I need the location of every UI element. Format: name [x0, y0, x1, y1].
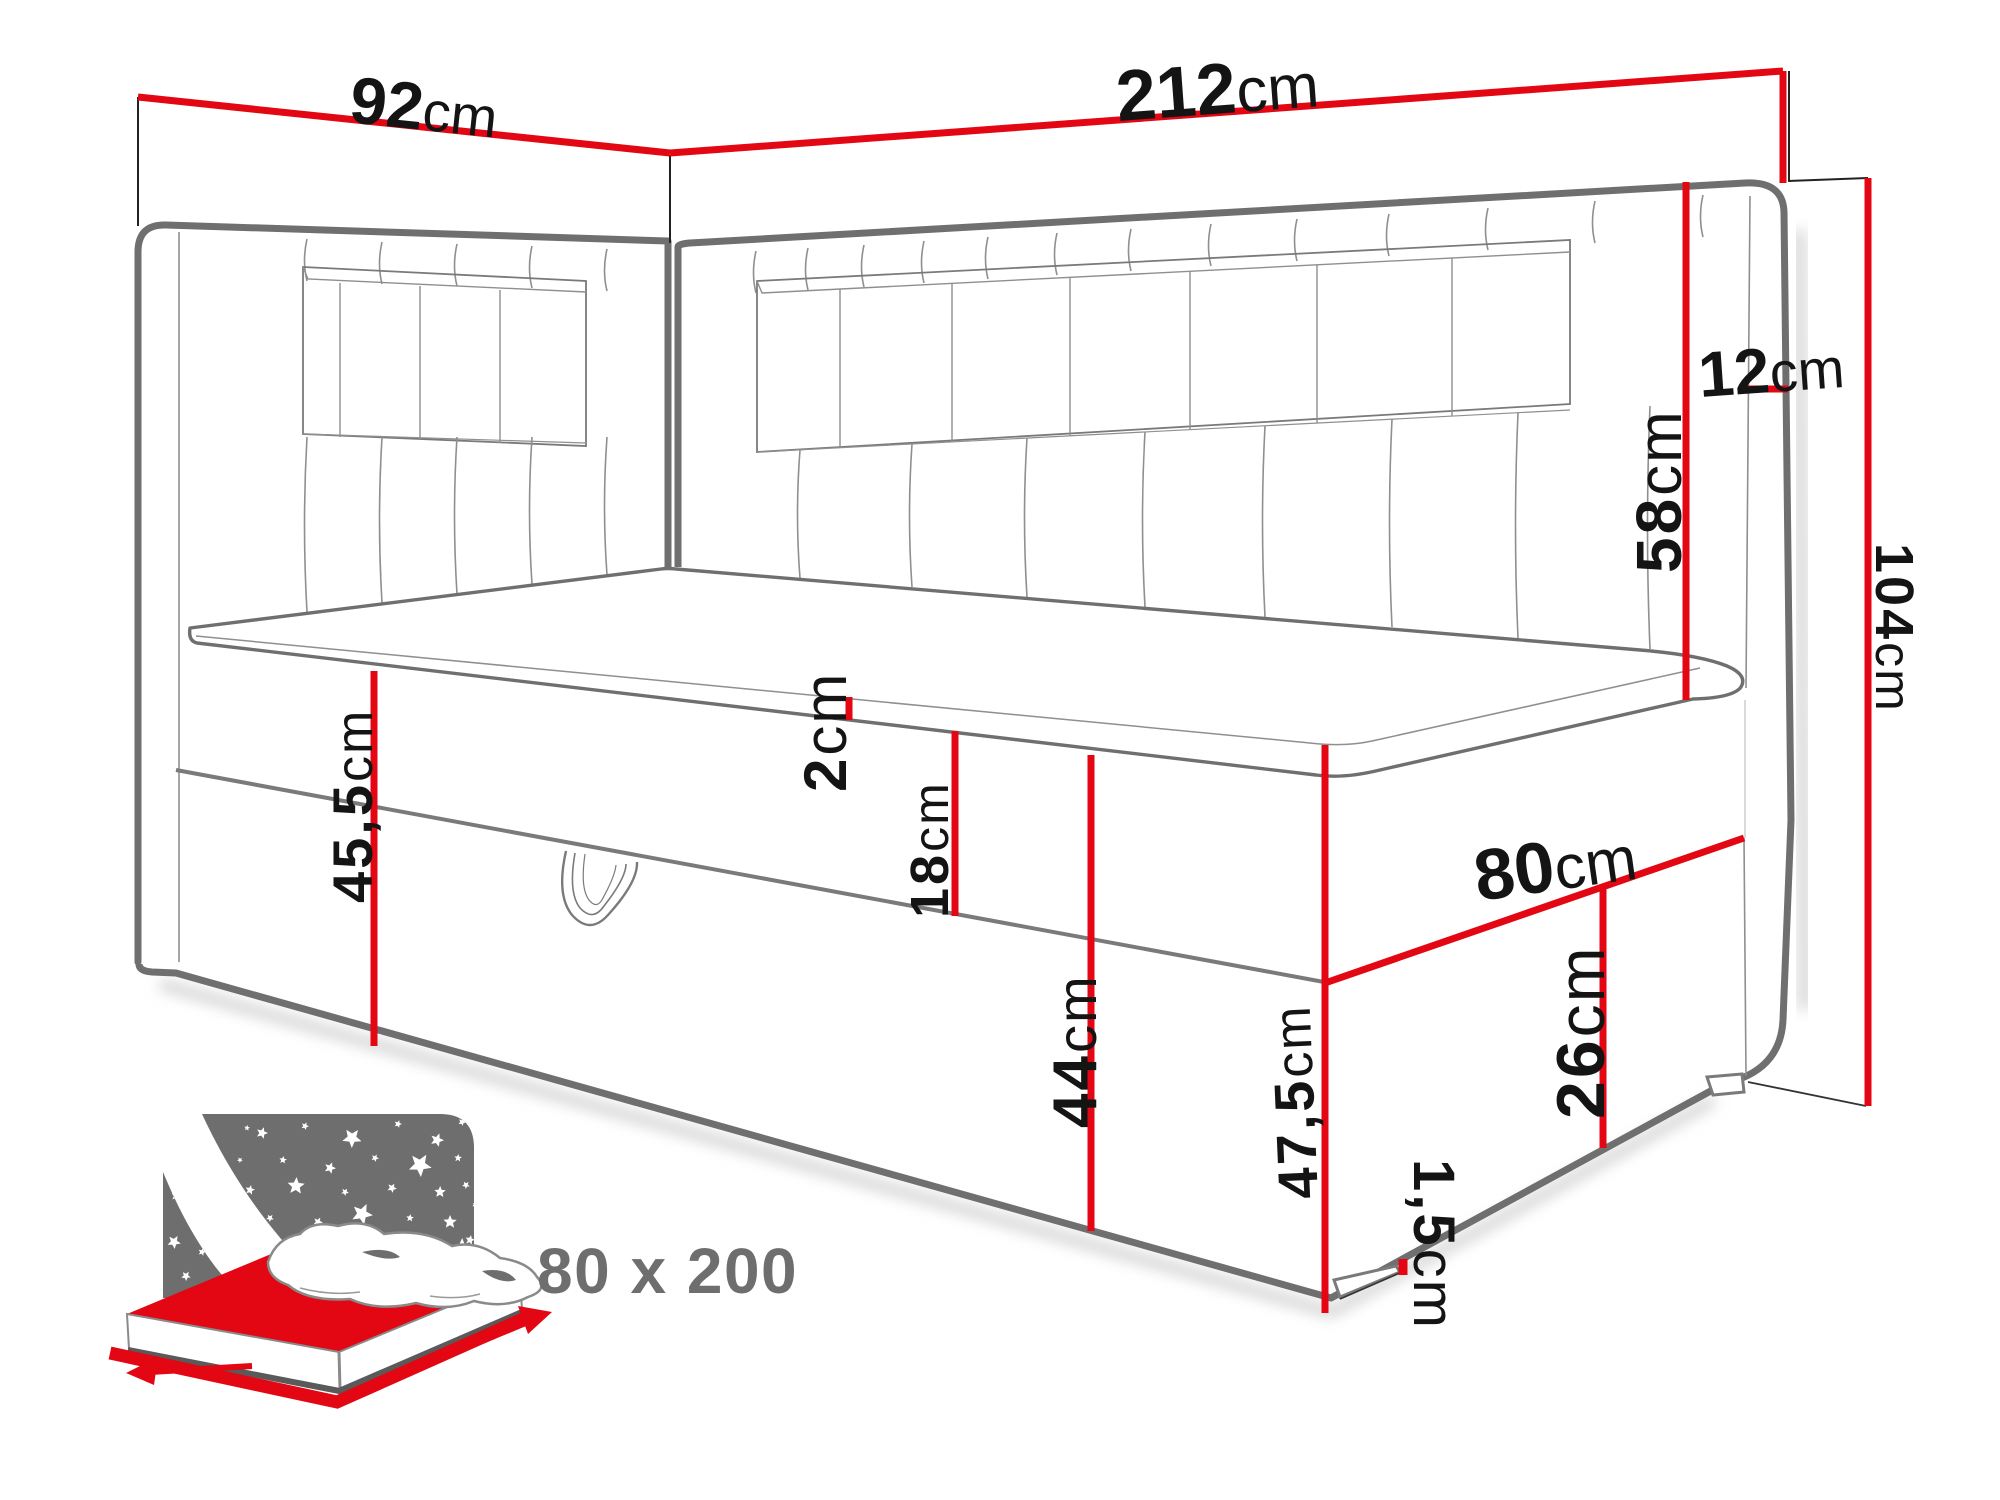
svg-text:2cm: 2cm: [792, 672, 859, 792]
svg-text:104cm: 104cm: [1864, 543, 1924, 713]
svg-text:26cm: 26cm: [1543, 945, 1619, 1119]
svg-text:18cm: 18cm: [900, 781, 960, 918]
svg-text:80 x 200: 80 x 200: [537, 1235, 798, 1307]
svg-text:1,5cm: 1,5cm: [1401, 1159, 1466, 1330]
svg-text:47,5cm: 47,5cm: [1259, 1003, 1330, 1200]
svg-text:12cm: 12cm: [1696, 329, 1847, 411]
svg-text:44cm: 44cm: [1041, 974, 1110, 1128]
svg-text:58cm: 58cm: [1623, 409, 1695, 573]
svg-text:45,5cm: 45,5cm: [321, 709, 384, 903]
